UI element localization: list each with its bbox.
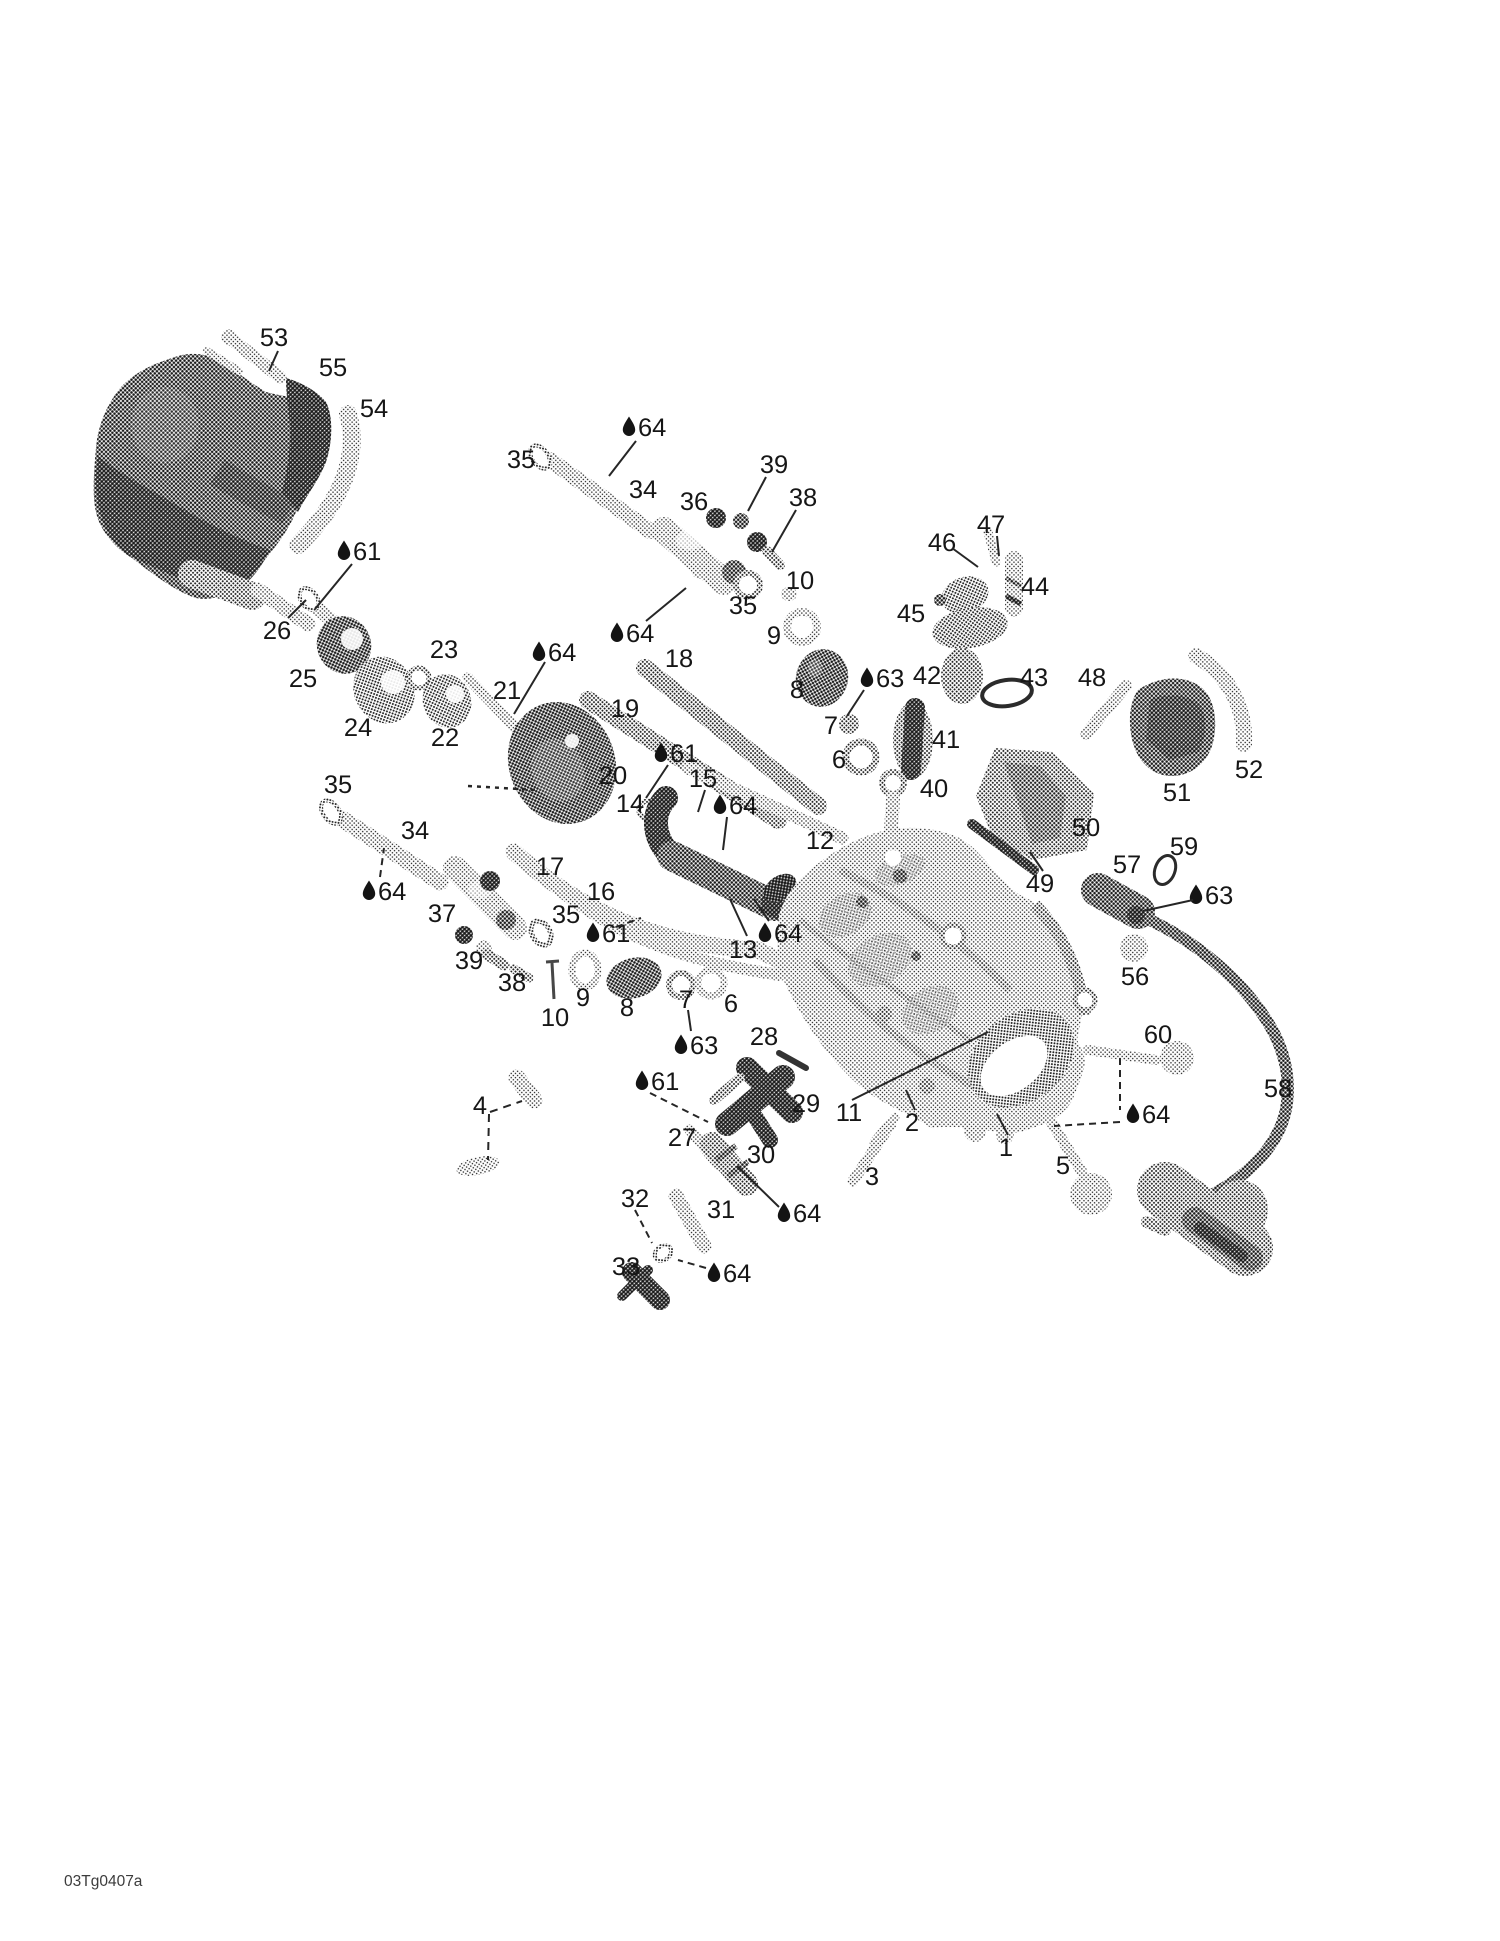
- svg-text:16: 16: [587, 878, 615, 906]
- svg-text:64: 64: [626, 620, 654, 648]
- svg-text:45: 45: [897, 600, 925, 628]
- svg-text:26: 26: [263, 617, 291, 645]
- svg-text:64: 64: [723, 1260, 751, 1288]
- svg-text:30: 30: [747, 1141, 775, 1169]
- svg-text:41: 41: [932, 726, 960, 754]
- svg-text:63: 63: [690, 1032, 718, 1060]
- svg-text:61: 61: [670, 740, 698, 768]
- svg-text:38: 38: [498, 969, 526, 997]
- svg-text:18: 18: [665, 645, 693, 673]
- svg-text:34: 34: [401, 817, 429, 845]
- svg-text:58: 58: [1264, 1075, 1292, 1103]
- svg-text:11: 11: [836, 1099, 862, 1127]
- svg-text:24: 24: [344, 714, 372, 742]
- svg-text:23: 23: [430, 636, 458, 664]
- svg-text:8: 8: [620, 994, 634, 1022]
- svg-text:54: 54: [360, 395, 388, 423]
- svg-text:39: 39: [760, 451, 788, 479]
- svg-text:52: 52: [1235, 756, 1263, 784]
- svg-text:6: 6: [832, 746, 846, 774]
- svg-text:47: 47: [977, 511, 1005, 539]
- svg-text:9: 9: [576, 984, 590, 1012]
- svg-text:61: 61: [602, 920, 630, 948]
- svg-text:6: 6: [724, 990, 738, 1018]
- svg-text:28: 28: [750, 1023, 778, 1051]
- svg-text:64: 64: [793, 1200, 821, 1228]
- svg-text:49: 49: [1026, 870, 1054, 898]
- svg-text:37: 37: [428, 900, 456, 928]
- svg-text:20: 20: [599, 762, 627, 790]
- svg-text:2: 2: [905, 1109, 919, 1137]
- svg-text:39: 39: [455, 947, 483, 975]
- svg-text:9: 9: [767, 622, 781, 650]
- svg-text:56: 56: [1121, 963, 1149, 991]
- svg-text:64: 64: [378, 878, 406, 906]
- svg-text:4: 4: [473, 1092, 487, 1120]
- svg-text:12: 12: [806, 827, 834, 855]
- svg-text:46: 46: [928, 529, 956, 557]
- svg-text:42: 42: [913, 662, 941, 690]
- svg-text:35: 35: [552, 901, 580, 929]
- svg-text:55: 55: [319, 354, 347, 382]
- svg-text:13: 13: [729, 936, 757, 964]
- svg-text:64: 64: [638, 414, 666, 442]
- svg-text:7: 7: [679, 986, 693, 1014]
- svg-text:64: 64: [548, 639, 576, 667]
- svg-text:50: 50: [1072, 814, 1100, 842]
- svg-text:03Tg0407a: 03Tg0407a: [64, 1873, 143, 1890]
- svg-text:15: 15: [689, 765, 717, 793]
- svg-text:60: 60: [1144, 1021, 1172, 1049]
- svg-text:29: 29: [792, 1090, 820, 1118]
- svg-text:57: 57: [1113, 851, 1141, 879]
- svg-text:35: 35: [507, 446, 535, 474]
- svg-text:32: 32: [621, 1185, 649, 1213]
- svg-text:59: 59: [1170, 833, 1198, 861]
- svg-text:63: 63: [876, 665, 904, 693]
- svg-text:17: 17: [536, 853, 564, 881]
- svg-text:64: 64: [1142, 1101, 1170, 1129]
- svg-text:51: 51: [1163, 779, 1191, 807]
- svg-text:25: 25: [289, 665, 317, 693]
- svg-text:10: 10: [786, 567, 814, 595]
- svg-text:5: 5: [1056, 1152, 1070, 1180]
- svg-text:38: 38: [789, 484, 817, 512]
- svg-text:53: 53: [260, 324, 288, 352]
- svg-text:22: 22: [431, 724, 459, 752]
- svg-text:44: 44: [1021, 573, 1049, 601]
- svg-text:48: 48: [1078, 664, 1106, 692]
- svg-text:33: 33: [612, 1253, 640, 1281]
- svg-text:34: 34: [629, 476, 657, 504]
- svg-text:14: 14: [616, 790, 644, 818]
- svg-text:1: 1: [999, 1134, 1013, 1162]
- svg-text:19: 19: [611, 695, 639, 723]
- svg-text:35: 35: [324, 771, 352, 799]
- svg-text:27: 27: [668, 1124, 696, 1152]
- svg-text:10: 10: [541, 1004, 569, 1032]
- svg-text:64: 64: [774, 920, 802, 948]
- svg-text:21: 21: [493, 677, 521, 705]
- svg-text:7: 7: [824, 712, 838, 740]
- svg-text:36: 36: [680, 488, 708, 516]
- svg-text:8: 8: [790, 676, 804, 704]
- svg-text:40: 40: [920, 775, 948, 803]
- svg-text:64: 64: [729, 792, 757, 820]
- svg-text:43: 43: [1020, 664, 1048, 692]
- svg-text:35: 35: [729, 592, 757, 620]
- svg-text:3: 3: [865, 1163, 879, 1191]
- svg-text:61: 61: [353, 538, 381, 566]
- svg-text:31: 31: [707, 1196, 735, 1224]
- svg-text:63: 63: [1205, 882, 1233, 910]
- svg-text:61: 61: [651, 1068, 679, 1096]
